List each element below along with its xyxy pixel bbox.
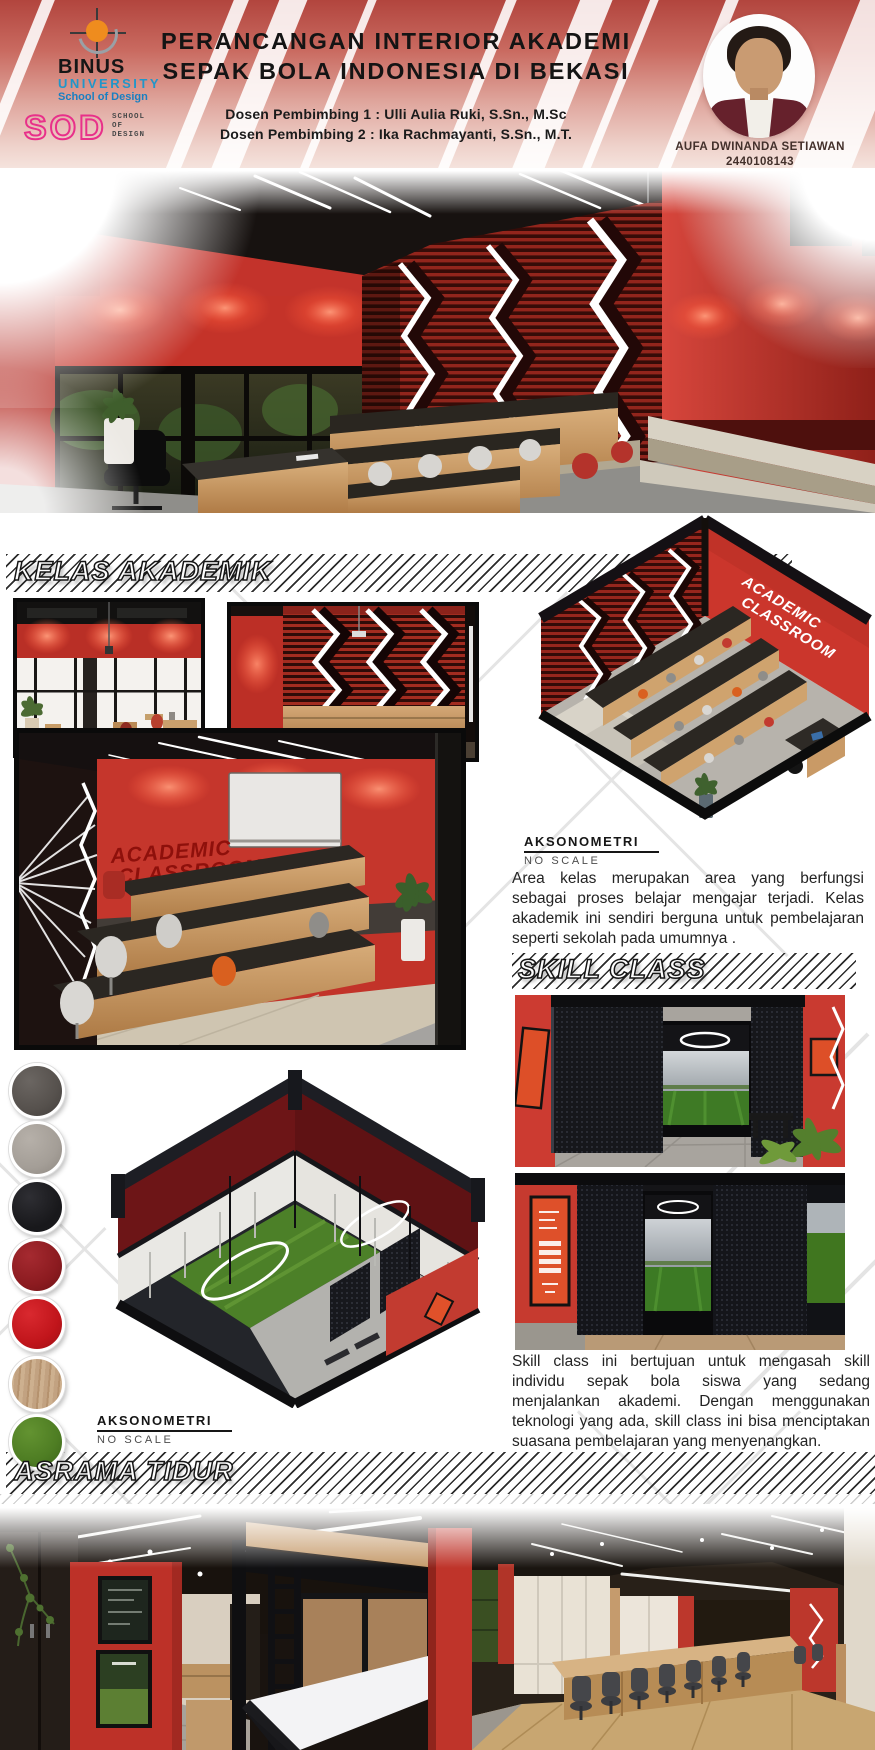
poster-title-line1: PERANCANGAN INTERIOR AKADEMI <box>150 26 642 56</box>
poster-title: PERANCANGAN INTERIOR AKADEMI SEPAK BOLA … <box>150 26 642 86</box>
skill-class-heading: SKILL CLASS <box>518 954 706 985</box>
asrama-tidur-heading: ASRAMA TIDUR <box>14 1456 233 1487</box>
sod-word-school: SCHOOL <box>112 113 145 122</box>
student-identity: AUFA DWINANDA SETIAWAN 2440108143 <box>650 140 870 168</box>
asrama-right-top-fade <box>472 1504 875 1568</box>
sod-word-of: OF <box>112 122 145 131</box>
kelas-akademik-heading: KELAS AKADEMIK <box>14 556 272 587</box>
hero-render-lobby <box>0 168 875 513</box>
kelas-akademik-perspective-render: ACADEMIC CLASSROOM <box>14 728 466 1050</box>
advisor-2: Dosen Pembimbing 2 : Ika Rachmayanti, S.… <box>150 124 642 144</box>
hero-right-vignette <box>615 168 875 368</box>
photo-blazer-left <box>707 98 749 138</box>
asrama-left-top-fade <box>0 1504 472 1568</box>
material-swatch-dark-red <box>9 1238 65 1294</box>
advisor-1: Dosen Pembimbing 1 : Ulli Aulia Ruki, S.… <box>150 104 642 124</box>
skill-aksonometri-scale: NO SCALE <box>97 1434 232 1446</box>
kelas-aksonometri-scale: NO SCALE <box>524 855 659 867</box>
binus-university: UNIVERSITY <box>58 76 161 91</box>
kelas-akademik-axonometric: ACADEMIC CLASSROOM <box>493 488 875 833</box>
sod-word-design: DESIGN <box>112 131 145 140</box>
skill-class-paragraph: Skill class ini bertujuan untuk mengasah… <box>512 1352 870 1452</box>
kelas-aksonometri-label-block: AKSONOMETRI NO SCALE <box>524 833 659 867</box>
advisors: Dosen Pembimbing 1 : Ulli Aulia Ruki, S.… <box>150 104 642 144</box>
skill-class-axonometric <box>80 1056 510 1408</box>
skill-aksonometri-label-block: AKSONOMETRI NO SCALE <box>97 1412 232 1446</box>
binus-logo-icon <box>56 10 120 54</box>
student-id: 2440108143 <box>650 155 870 168</box>
kelas-aksonometri-label: AKSONOMETRI <box>524 834 659 853</box>
poster-title-line2: SEPAK BOLA INDONESIA DI BEKASI <box>150 56 642 86</box>
kelas-akademik-paragraph: Area kelas merupakan area yang berfungsi… <box>512 869 864 949</box>
material-swatch-black-matte <box>9 1179 65 1235</box>
design-presentation-board: BINUS UNIVERSITY School of Design SOD SC… <box>0 0 875 1750</box>
skill-class-render-2 <box>515 1173 845 1350</box>
header-banner: BINUS UNIVERSITY School of Design SOD SC… <box>0 0 875 168</box>
student-name: AUFA DWINANDA SETIAWAN <box>650 140 870 155</box>
asrama-render-study-area <box>472 1504 875 1750</box>
material-swatch-dark-grey-fabric <box>9 1063 65 1119</box>
asrama-render-bunkbeds <box>0 1504 472 1750</box>
binus-school-of-design: School of Design <box>58 91 148 103</box>
material-swatch-light-grey-fabric <box>9 1121 65 1177</box>
sod-acronym: SOD <box>24 111 107 145</box>
material-swatch-red <box>9 1296 65 1352</box>
material-swatch-light-wood <box>9 1356 65 1412</box>
skill-aksonometri-label: AKSONOMETRI <box>97 1413 232 1432</box>
skill-class-render-1 <box>515 995 845 1167</box>
hero-bottomleft-vignette <box>0 363 200 513</box>
student-photo <box>703 14 815 138</box>
photo-blazer-right <box>769 98 811 138</box>
